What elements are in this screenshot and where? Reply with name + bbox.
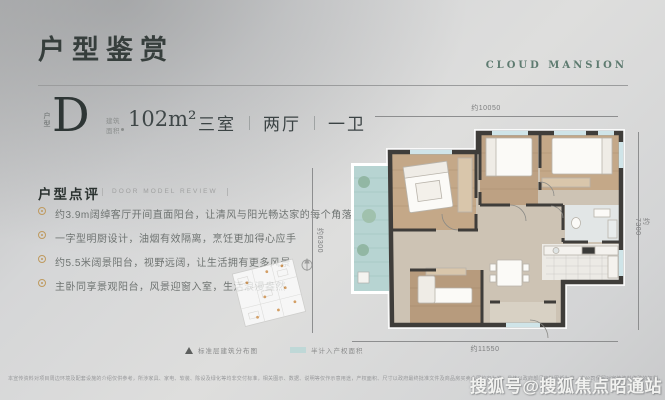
keyplan-diagram (228, 248, 318, 333)
dim-line-left (312, 168, 313, 333)
north-triangle-icon (185, 347, 193, 354)
room-count-livingrooms: 两厅 (263, 110, 301, 135)
dining-table (497, 260, 522, 286)
wardrobe-master (458, 158, 472, 212)
bullet-text: 约3.9m阔绰客厅开间直面阳台，让清风与阳光畅达家的每个角落 (55, 206, 352, 221)
bed-master (403, 161, 453, 213)
bullet-dot-icon (38, 255, 46, 263)
bullet-dot-icon (38, 231, 46, 239)
review-bullet-2: 一字型明厨设计，油烟有效隔离，烹饪更加得心应手 (38, 230, 297, 245)
page-title: 户型鉴赏 (38, 28, 174, 67)
plan-legend: 标准层建筑分布图 半计入产权面积 (185, 345, 364, 355)
stove (582, 247, 595, 254)
sink (553, 248, 559, 254)
separator (314, 116, 315, 130)
fridge (608, 256, 618, 278)
unit-letter: D (52, 92, 90, 139)
review-subtitle: DOOR MODEL REVIEW (102, 188, 228, 196)
dim-line-top (375, 116, 618, 117)
area-value: 102m² (128, 107, 196, 131)
poster-canvas: 户型鉴赏 CLOUD MANSION 户型 D 建筑面积 102m² 三室 两厅… (0, 0, 665, 400)
brand-logotype: CLOUD MANSION (486, 60, 627, 71)
floorplan (340, 120, 632, 338)
balcony-left (351, 163, 392, 294)
area-dot-icon (121, 128, 124, 131)
unit-type-label: 户型 (41, 112, 51, 128)
compass-icon (302, 259, 312, 271)
area-label: 建筑面积 (106, 117, 121, 137)
dim-label-right: 约7300 (634, 218, 651, 236)
room-count-bedrooms: 三室 (198, 110, 236, 135)
bullet-text: 一字型明厨设计，油烟有效隔离，烹饪更加得心应手 (55, 230, 297, 245)
legend-keyplan-label: 标准层建筑分布图 (198, 345, 258, 355)
dim-label-left: 约6300 (315, 228, 325, 253)
bullet-dot-icon (38, 207, 46, 215)
bullet-dot-icon (38, 279, 46, 287)
balcony-bottom-floor (490, 302, 556, 323)
dim-line-bottom (352, 341, 618, 342)
shower (608, 220, 617, 238)
review-title: 户型点评 (38, 183, 100, 203)
watermark: 搜狐号@搜狐焦点昭通站 (470, 372, 662, 397)
separator (249, 116, 250, 130)
dim-label-top: 约10050 (340, 103, 632, 113)
review-bullet-1: 约3.9m阔绰客厅开间直面阳台，让清风与阳光畅达家的每个角落 (38, 206, 352, 221)
legend-swatch-label: 半计入产权面积 (311, 345, 364, 355)
bath-sink (594, 209, 610, 217)
legend-swatch (290, 347, 306, 353)
dim-label-bottom: 约11550 (352, 344, 618, 354)
toilet (572, 218, 581, 229)
header-divider (38, 85, 628, 86)
